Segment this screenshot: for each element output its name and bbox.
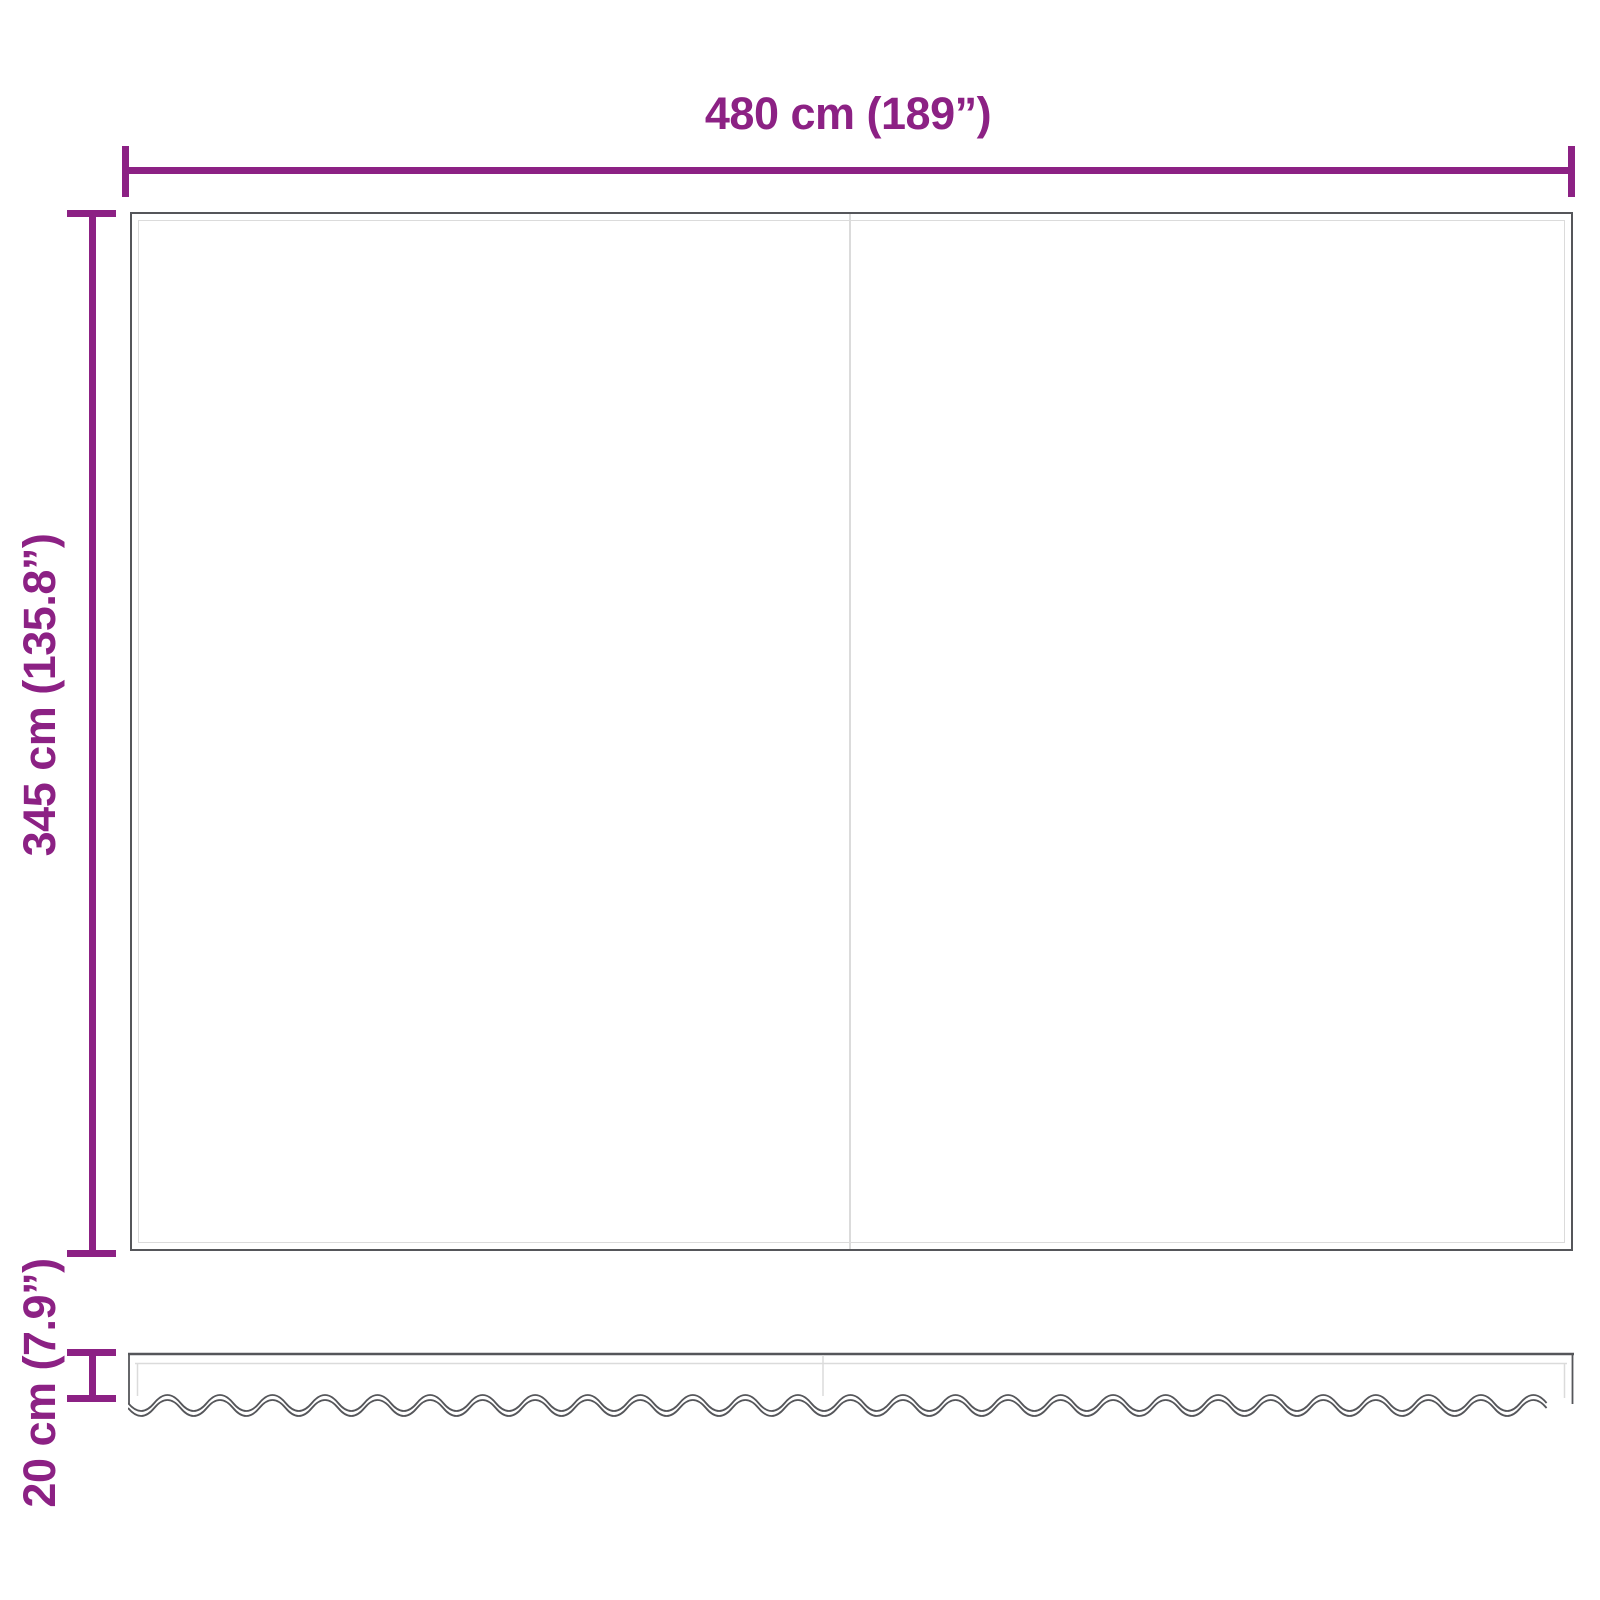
valance-dimension-label: 20 cm (7.9”) xyxy=(14,1258,66,1507)
width-dimension-label: 480 cm (189”) xyxy=(705,88,991,140)
dimension-diagram-canvas: 480 cm (189”) 345 cm (135.8”) 20 cm (7.9… xyxy=(0,0,1600,1600)
valance-dimension-cap-bottom xyxy=(67,1395,116,1402)
height-dimension-cap-top xyxy=(67,210,116,217)
width-dimension-cap-left xyxy=(122,146,129,197)
valance-dimension-cap-top xyxy=(67,1349,116,1356)
width-dimension-cap-right xyxy=(1568,146,1575,197)
height-dimension-cap-bottom xyxy=(67,1250,116,1257)
width-dimension-line xyxy=(122,167,1575,174)
height-dimension-label: 345 cm (135.8”) xyxy=(14,534,66,857)
fabric-inner-stitch-line xyxy=(138,220,1565,1243)
height-dimension-line xyxy=(89,210,96,1257)
awning-fabric-panel xyxy=(130,212,1573,1251)
fabric-center-seam xyxy=(849,214,851,1249)
valance-strip xyxy=(128,1352,1574,1430)
